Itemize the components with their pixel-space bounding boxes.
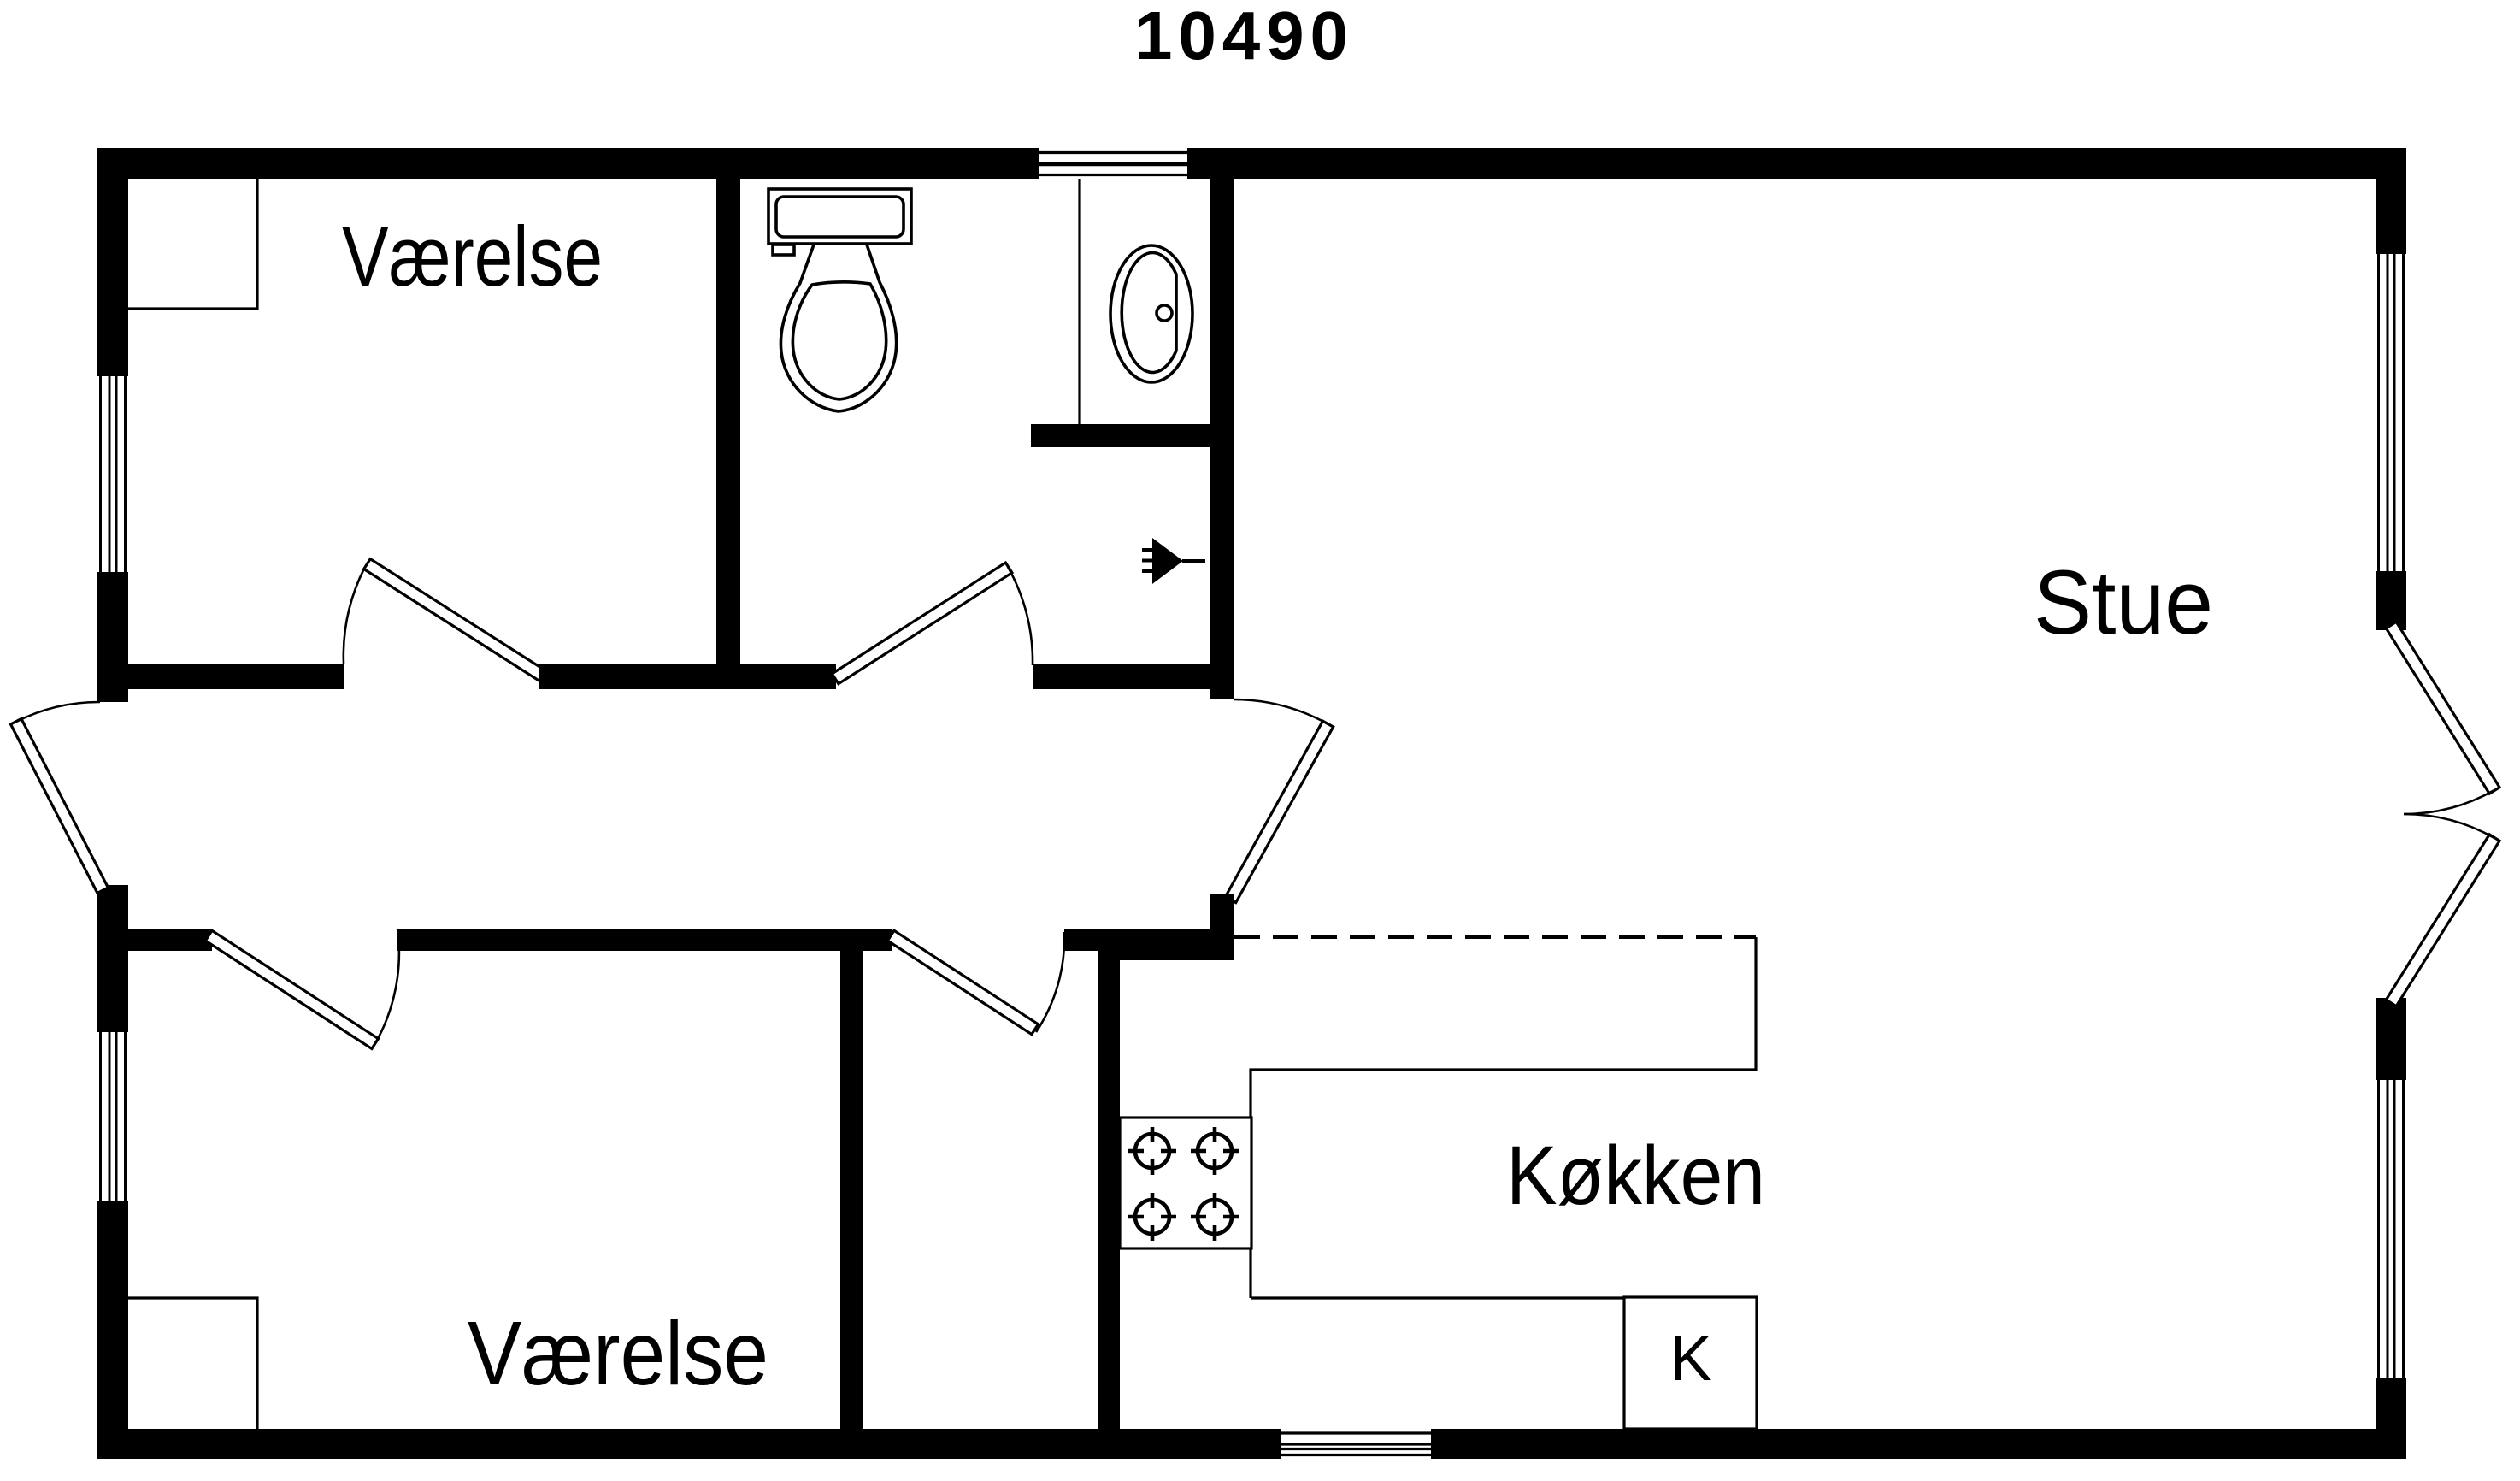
svg-text:Køkken: Køkken <box>1506 1129 1765 1222</box>
svg-text:K: K <box>1669 1323 1711 1394</box>
svg-text:Værelse: Værelse <box>342 209 603 304</box>
svg-text:Stue: Stue <box>2034 551 2213 653</box>
svg-text:10490: 10490 <box>1134 0 1348 74</box>
svg-text:Værelse: Værelse <box>468 1303 768 1404</box>
